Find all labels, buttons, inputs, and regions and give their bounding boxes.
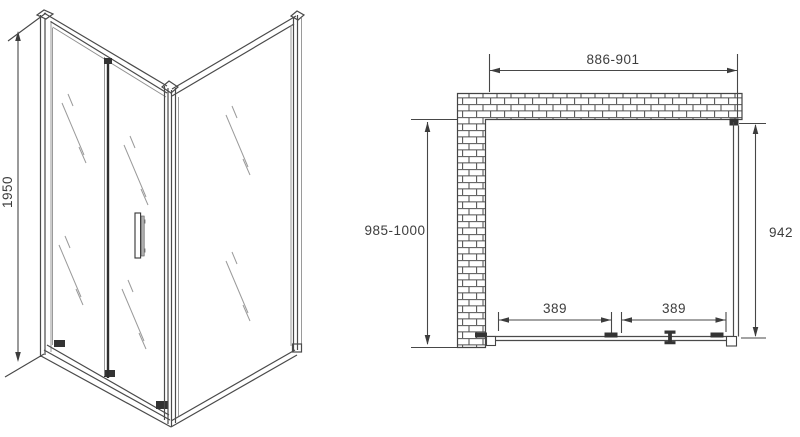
plan-door-knob bbox=[665, 331, 676, 345]
technical-drawing-canvas: 1950 bbox=[0, 0, 800, 437]
reflection-door-lower bbox=[122, 280, 146, 349]
right-wall-profile bbox=[291, 11, 304, 352]
perspective-view: 1950 bbox=[0, 10, 304, 427]
reflection-front-upper bbox=[62, 94, 86, 163]
plan-bracket-left bbox=[487, 337, 496, 346]
brick-wall bbox=[458, 94, 743, 348]
door-divider bbox=[104, 57, 112, 378]
reflection-front-lower bbox=[59, 236, 83, 305]
shower-enclosure-drawing: 1950 bbox=[0, 0, 800, 437]
plan-side-panel bbox=[730, 119, 739, 337]
depth-dimension-label: 985-1000 bbox=[364, 223, 425, 238]
side-panel-dimension: 942 bbox=[739, 124, 793, 339]
depth-dimension: 985-1000 bbox=[364, 120, 462, 348]
front-bottom-track bbox=[41, 340, 171, 427]
reflection-side-lower bbox=[226, 252, 250, 321]
door-dimension-left: 389 bbox=[499, 301, 612, 333]
door-dimension-left-label: 389 bbox=[543, 301, 567, 316]
front-top-rail bbox=[44, 13, 167, 97]
reflection-side-upper bbox=[226, 106, 250, 175]
height-dimension-label: 1950 bbox=[0, 176, 15, 208]
left-wall-profile bbox=[37, 10, 53, 357]
plan-view: 886-901 985-1000 942 389 bbox=[364, 52, 793, 348]
plan-roller-right bbox=[711, 333, 724, 338]
door-handle bbox=[135, 213, 146, 258]
plan-bracket-corner bbox=[727, 337, 737, 347]
plan-door-track bbox=[475, 331, 737, 347]
track-roller-right bbox=[156, 401, 168, 409]
side-top-rail bbox=[172, 16, 296, 96]
door-dimension-right-label: 389 bbox=[662, 301, 686, 316]
plan-roller-middle bbox=[605, 333, 618, 338]
reflection-door-upper bbox=[124, 136, 148, 205]
door-dimension-right: 389 bbox=[622, 301, 727, 333]
track-roller-left bbox=[54, 340, 65, 347]
side-bottom-rail bbox=[171, 350, 297, 427]
corner-post bbox=[162, 81, 178, 427]
glass-reflections bbox=[59, 94, 250, 349]
plan-stopper-left bbox=[475, 333, 487, 338]
track-guide-middle bbox=[104, 370, 115, 377]
side-panel-dimension-label: 942 bbox=[769, 225, 793, 240]
width-dimension-label: 886-901 bbox=[586, 52, 639, 67]
height-dimension: 1950 bbox=[0, 13, 46, 377]
